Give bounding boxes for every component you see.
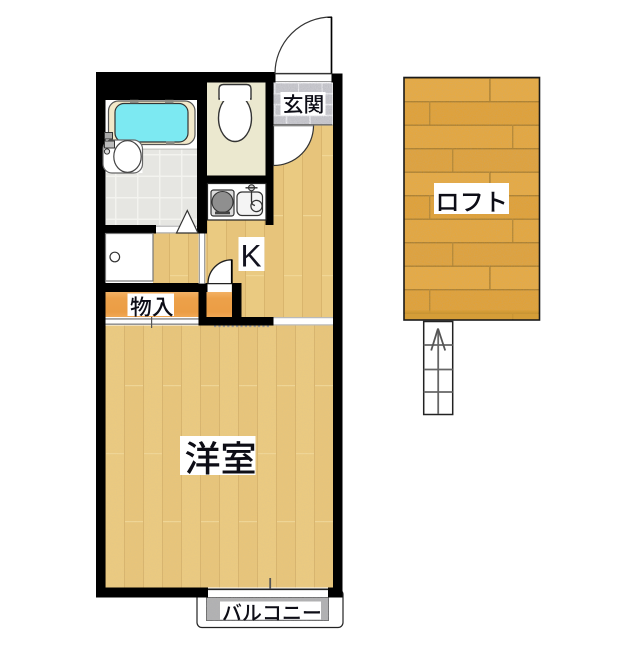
svg-text:K: K [241,238,262,274]
